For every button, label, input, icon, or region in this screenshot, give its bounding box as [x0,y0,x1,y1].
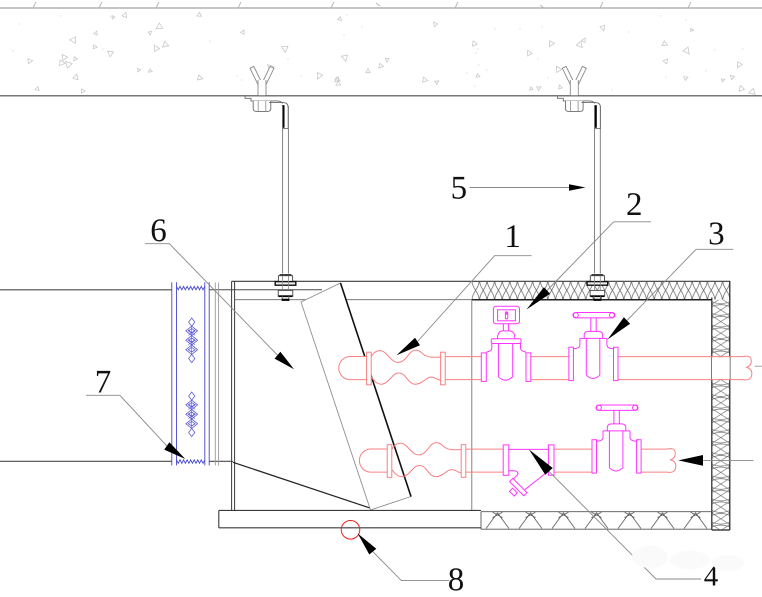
svg-text:8: 8 [448,562,465,597]
svg-text:5: 5 [451,170,468,206]
svg-text:3: 3 [708,216,725,252]
svg-text:1: 1 [504,219,521,255]
svg-text:2: 2 [626,187,643,223]
